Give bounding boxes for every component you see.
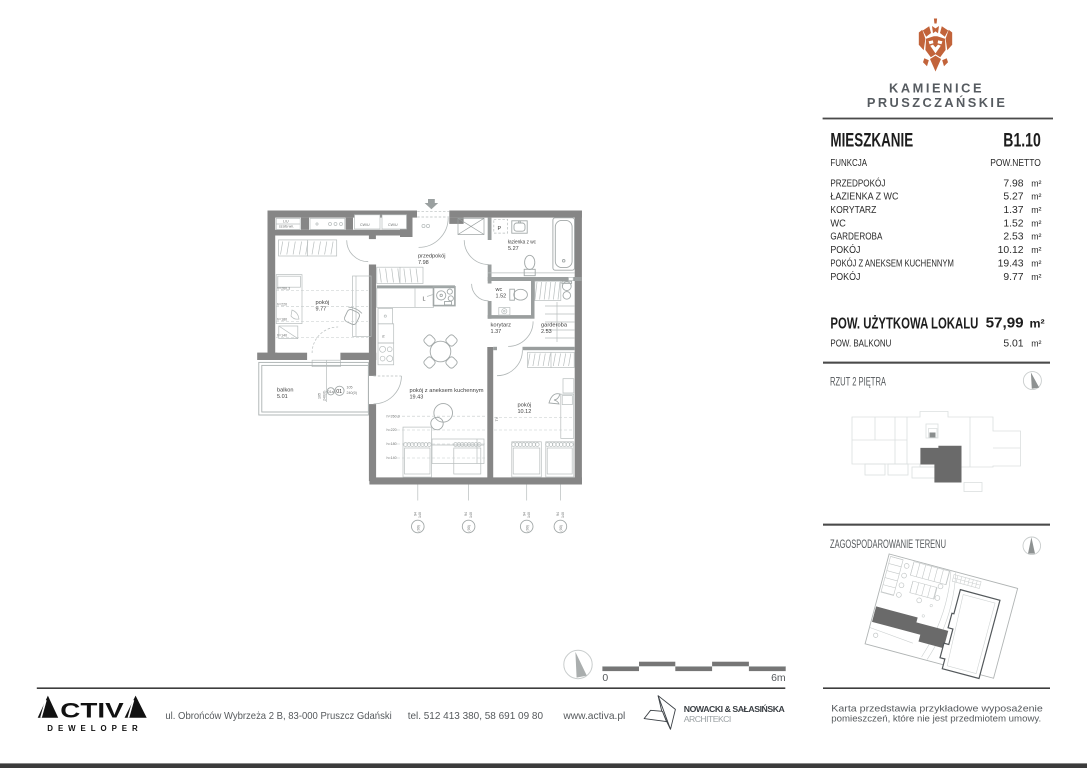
svg-text:L/U: L/U — [283, 220, 289, 224]
svg-text:5.27: 5.27 — [1003, 192, 1023, 203]
svg-text:korytarz: korytarz — [491, 323, 512, 329]
svg-text:10.12: 10.12 — [518, 409, 532, 415]
svg-text:h=220: h=220 — [277, 303, 287, 307]
svg-text:POKÓJ Z ANEKSEM KUCHENNYM: POKÓJ Z ANEKSEM KUCHENNYM — [830, 256, 954, 269]
svg-text:POW. UŻYTKOWA LOKALU: POW. UŻYTKOWA LOKALU — [830, 314, 978, 332]
svg-text:przedpokój: przedpokój — [418, 254, 446, 260]
svg-text:N: N — [382, 335, 386, 338]
svg-text:ul. Obrońców Wybrzeża 2 B, 83: ul. Obrońców Wybrzeża 2 B, 83-000 Pruszc… — [165, 711, 391, 722]
svg-text:łazienka z wc: łazienka z wc — [508, 240, 536, 246]
svg-text:CTIV: CTIV — [60, 700, 124, 723]
svg-text:m²: m² — [1030, 317, 1045, 331]
svg-text:POW. BALKONU: POW. BALKONU — [830, 338, 891, 349]
svg-text:tel. 512 413 380, 58 691 09 80: tel. 512 413 380, 58 691 09 80 — [408, 711, 544, 722]
svg-text:wc: wc — [495, 287, 503, 293]
svg-text:POKÓJ: POKÓJ — [830, 243, 860, 256]
svg-text:h=260,3: h=260,3 — [387, 414, 400, 418]
svg-text:105: 105 — [318, 393, 322, 399]
svg-text:5.27: 5.27 — [508, 246, 519, 252]
svg-text:WC: WC — [830, 218, 846, 229]
svg-text:MIESZKANIE: MIESZKANIE — [830, 130, 913, 152]
svg-text:pokój: pokój — [316, 300, 330, 306]
svg-text:h=220: h=220 — [387, 428, 397, 432]
svg-text:01: 01 — [336, 389, 342, 395]
svg-text:KORYTARZ: KORYTARZ — [830, 205, 876, 216]
svg-text:140: 140 — [418, 512, 422, 518]
svg-text:P: P — [498, 226, 502, 232]
svg-text:B1.10: B1.10 — [1003, 130, 1041, 152]
svg-text:2.53: 2.53 — [541, 329, 552, 335]
svg-text:140: 140 — [561, 512, 565, 518]
svg-text:PRZEDPOKÓJ: PRZEDPOKÓJ — [830, 176, 885, 189]
svg-text:h=180: h=180 — [387, 442, 397, 446]
svg-text:POKÓJ: POKÓJ — [830, 270, 860, 283]
svg-text:ARCHITEKCI: ARCHITEKCI — [684, 714, 732, 724]
svg-text:m²: m² — [1031, 178, 1041, 188]
svg-text:94: 94 — [556, 512, 560, 516]
svg-text:94: 94 — [413, 512, 417, 516]
svg-text:240(0): 240(0) — [322, 391, 326, 401]
svg-text:5.01: 5.01 — [1003, 338, 1023, 349]
svg-text:ŁAZIENKA Z WC: ŁAZIENKA Z WC — [830, 192, 898, 203]
svg-text:h=140: h=140 — [277, 333, 287, 337]
svg-text:garderoba: garderoba — [541, 323, 568, 329]
svg-text:94: 94 — [464, 512, 468, 516]
svg-text:m²: m² — [1031, 192, 1041, 202]
svg-text:1.37: 1.37 — [491, 329, 502, 335]
svg-text:m²: m² — [1031, 218, 1041, 228]
svg-text:ZAGOSPODAROWANIE TERENU: ZAGOSPODAROWANIE TERENU — [830, 538, 946, 551]
svg-text:240(0): 240(0) — [347, 391, 357, 395]
svg-text:pokój z aneksem kuchennym: pokój z aneksem kuchennym — [410, 388, 484, 394]
svg-text:h=180: h=180 — [277, 317, 287, 321]
svg-text:CW/U: CW/U — [388, 223, 398, 227]
svg-text:9.77: 9.77 — [316, 307, 327, 313]
svg-text:balkon: balkon — [277, 388, 294, 394]
svg-text:10.12: 10.12 — [998, 245, 1024, 256]
svg-text:m²: m² — [1031, 338, 1041, 348]
svg-text:www.activa.pl: www.activa.pl — [562, 711, 625, 722]
svg-text:NOWACKI & SAŁASIŃSKA: NOWACKI & SAŁASIŃSKA — [684, 704, 786, 714]
svg-text:GARDEROBA: GARDEROBA — [830, 232, 882, 243]
svg-text:FUNKCJA: FUNKCJA — [830, 158, 867, 169]
svg-text:(00): (00) — [525, 525, 529, 531]
svg-text:KAMIENICE: KAMIENICE — [889, 81, 982, 96]
svg-text:1.52: 1.52 — [1003, 218, 1023, 229]
svg-text:(00): (00) — [559, 525, 563, 531]
svg-text:5.01: 5.01 — [277, 394, 288, 400]
svg-text:L: L — [423, 297, 426, 303]
svg-text:94: 94 — [522, 512, 526, 516]
svg-text:szafa wn.: szafa wn. — [279, 224, 294, 228]
svg-text:DEWELOPER: DEWELOPER — [47, 724, 138, 733]
svg-text:(00): (00) — [467, 525, 471, 531]
svg-text:01a: 01a — [328, 390, 334, 394]
svg-text:pokój: pokój — [518, 403, 532, 409]
svg-text:1.37: 1.37 — [1003, 205, 1023, 216]
svg-text:105: 105 — [347, 386, 353, 390]
svg-text:RZUT 2 PIĘTRA: RZUT 2 PIĘTRA — [830, 375, 886, 388]
svg-text:m²: m² — [1031, 258, 1041, 268]
svg-text:57,99: 57,99 — [986, 315, 1024, 332]
svg-text:7.98: 7.98 — [418, 260, 429, 266]
svg-text:0: 0 — [602, 672, 608, 684]
svg-text:(00): (00) — [416, 525, 420, 531]
svg-text:CW/U: CW/U — [360, 223, 370, 227]
svg-text:7.98: 7.98 — [1003, 178, 1023, 189]
svg-text:POW.NETTO: POW.NETTO — [990, 158, 1041, 169]
svg-text:19.43: 19.43 — [410, 394, 424, 400]
svg-text:m²: m² — [1031, 232, 1041, 242]
svg-text:2.53: 2.53 — [1003, 232, 1023, 243]
svg-text:m²: m² — [1031, 272, 1041, 282]
svg-text:m²: m² — [1031, 205, 1041, 215]
svg-text:140: 140 — [469, 512, 473, 518]
svg-text:TV: TV — [495, 416, 499, 421]
svg-text:h=140: h=140 — [387, 456, 397, 460]
svg-text:6m: 6m — [771, 672, 786, 684]
svg-text:m²: m² — [1031, 245, 1041, 255]
svg-text:h=260,3: h=260,3 — [277, 286, 290, 290]
svg-text:pomieszczeń, które nie jest pr: pomieszczeń, które nie jest przedmiotem … — [831, 712, 1041, 723]
svg-text:19.43: 19.43 — [998, 258, 1024, 269]
svg-text:9.77: 9.77 — [1003, 272, 1023, 283]
svg-text:1.52: 1.52 — [496, 293, 507, 299]
svg-text:140: 140 — [527, 512, 531, 518]
